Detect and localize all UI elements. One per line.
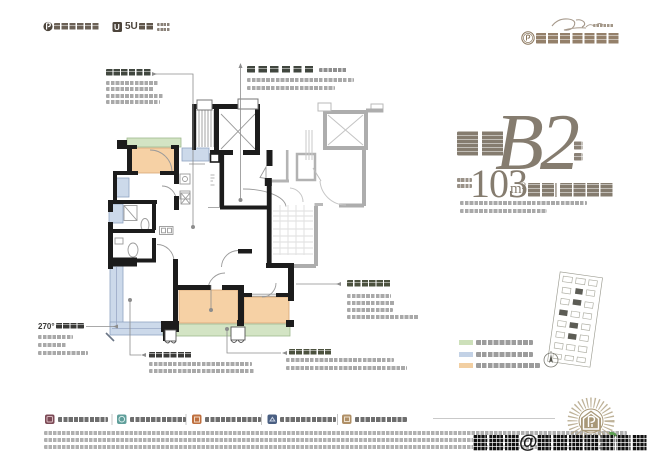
svg-text:U: U xyxy=(114,23,120,32)
